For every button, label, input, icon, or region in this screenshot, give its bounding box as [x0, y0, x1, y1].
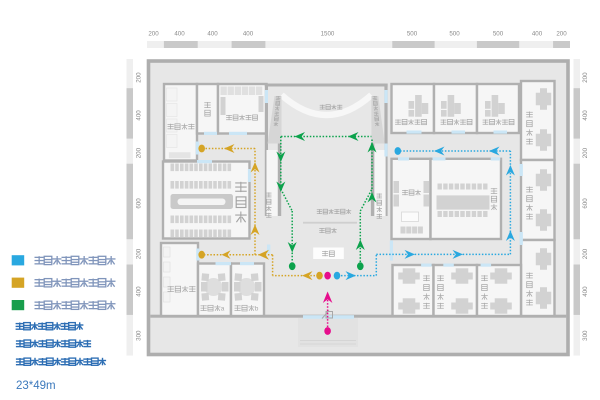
svg-text:400: 400 — [136, 286, 143, 297]
svg-text:600: 600 — [136, 198, 143, 209]
svg-text:b: b — [255, 306, 259, 313]
svg-text:23*49m: 23*49m — [16, 380, 56, 392]
svg-text:400: 400 — [582, 286, 589, 297]
svg-text:300: 300 — [136, 330, 143, 341]
svg-text:200: 200 — [136, 147, 143, 158]
svg-text:200: 200 — [582, 248, 589, 259]
svg-text:300: 300 — [582, 330, 589, 341]
svg-text:400: 400 — [582, 110, 589, 121]
svg-text:400: 400 — [532, 31, 543, 38]
svg-text:200: 200 — [556, 31, 567, 38]
svg-text:500: 500 — [493, 31, 504, 38]
svg-text:400: 400 — [136, 110, 143, 121]
svg-text:200: 200 — [136, 72, 143, 83]
svg-text:200: 200 — [582, 72, 589, 83]
svg-text:200: 200 — [148, 31, 159, 38]
svg-text:200: 200 — [136, 248, 143, 259]
svg-text:500: 500 — [407, 31, 418, 38]
svg-text:200: 200 — [582, 147, 589, 158]
svg-text:500: 500 — [449, 31, 460, 38]
svg-text:1500: 1500 — [321, 31, 335, 38]
svg-text:400: 400 — [174, 31, 185, 38]
svg-text:400: 400 — [243, 31, 254, 38]
svg-text:a: a — [221, 306, 225, 313]
svg-text:600: 600 — [582, 198, 589, 209]
svg-text:400: 400 — [207, 31, 218, 38]
